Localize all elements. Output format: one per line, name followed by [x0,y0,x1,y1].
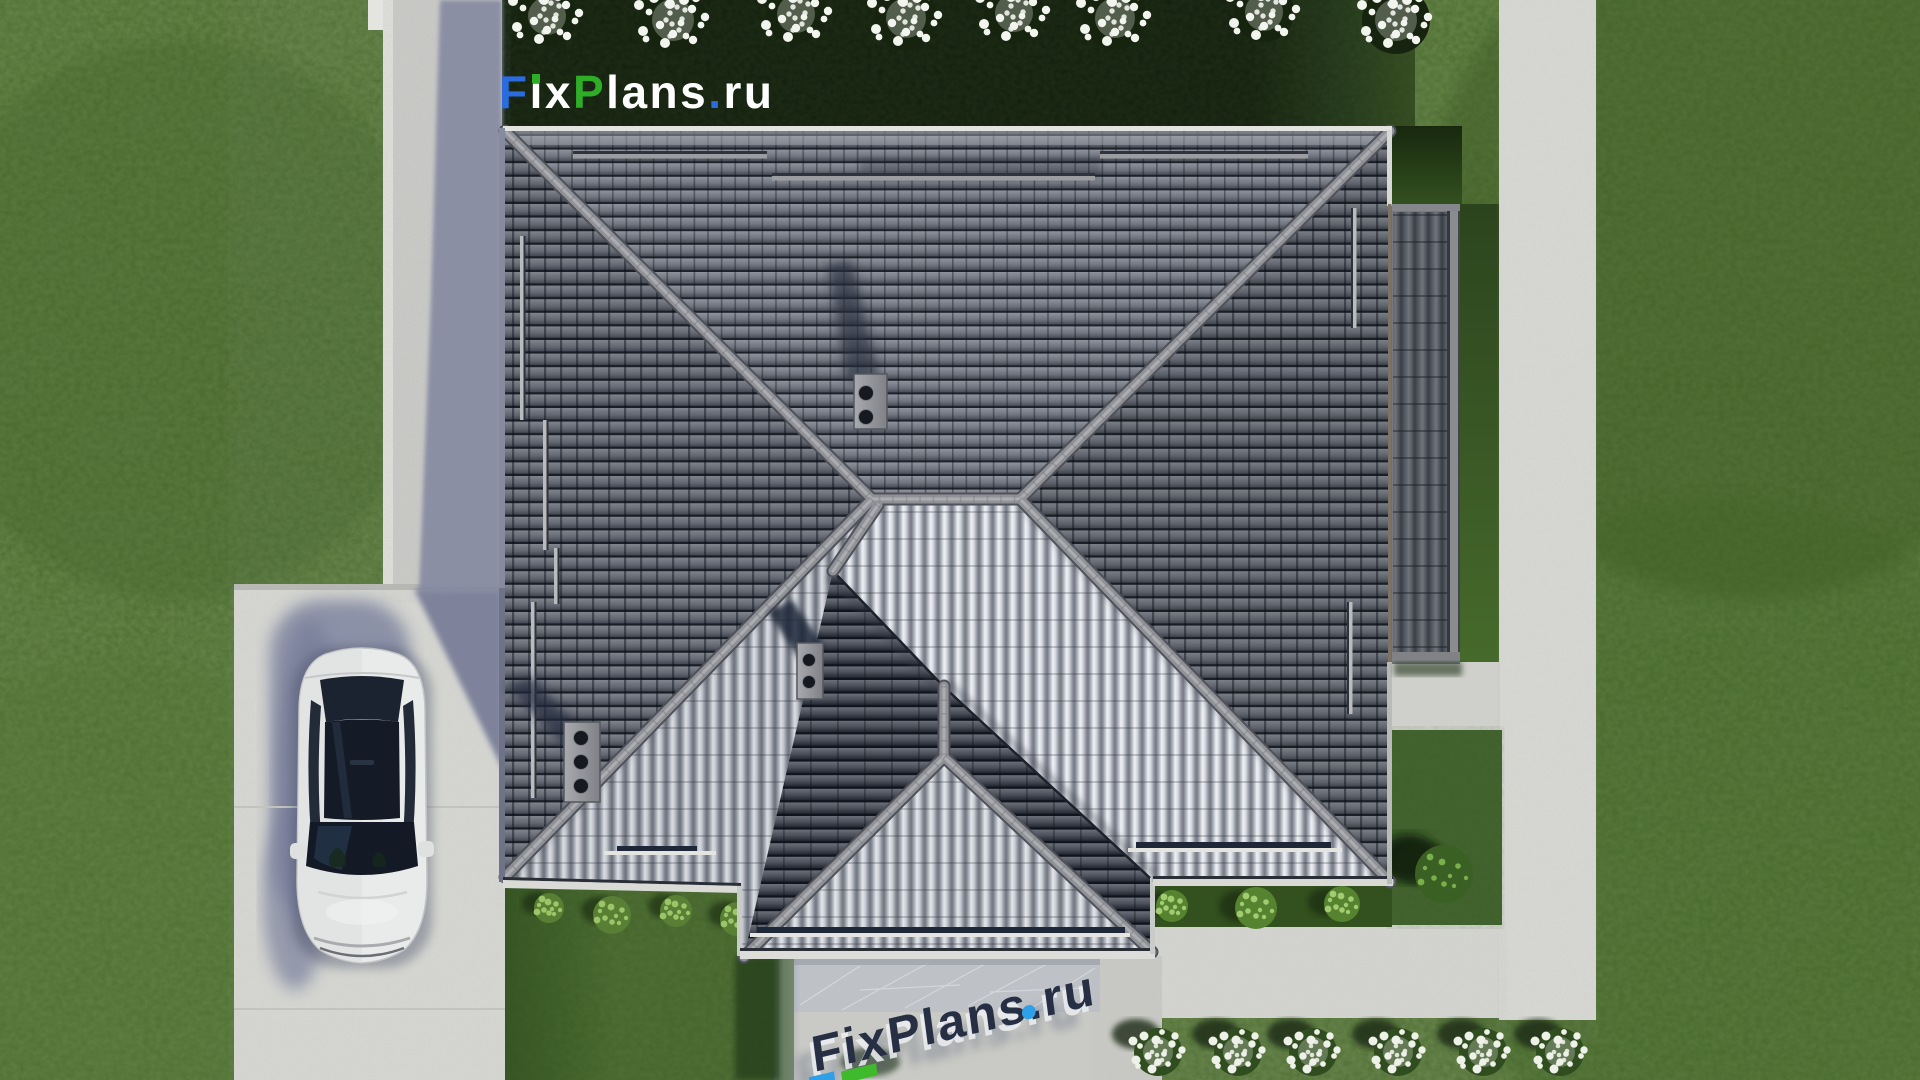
svg-text:FixPlans.ru: FixPlans.ru [499,66,775,118]
